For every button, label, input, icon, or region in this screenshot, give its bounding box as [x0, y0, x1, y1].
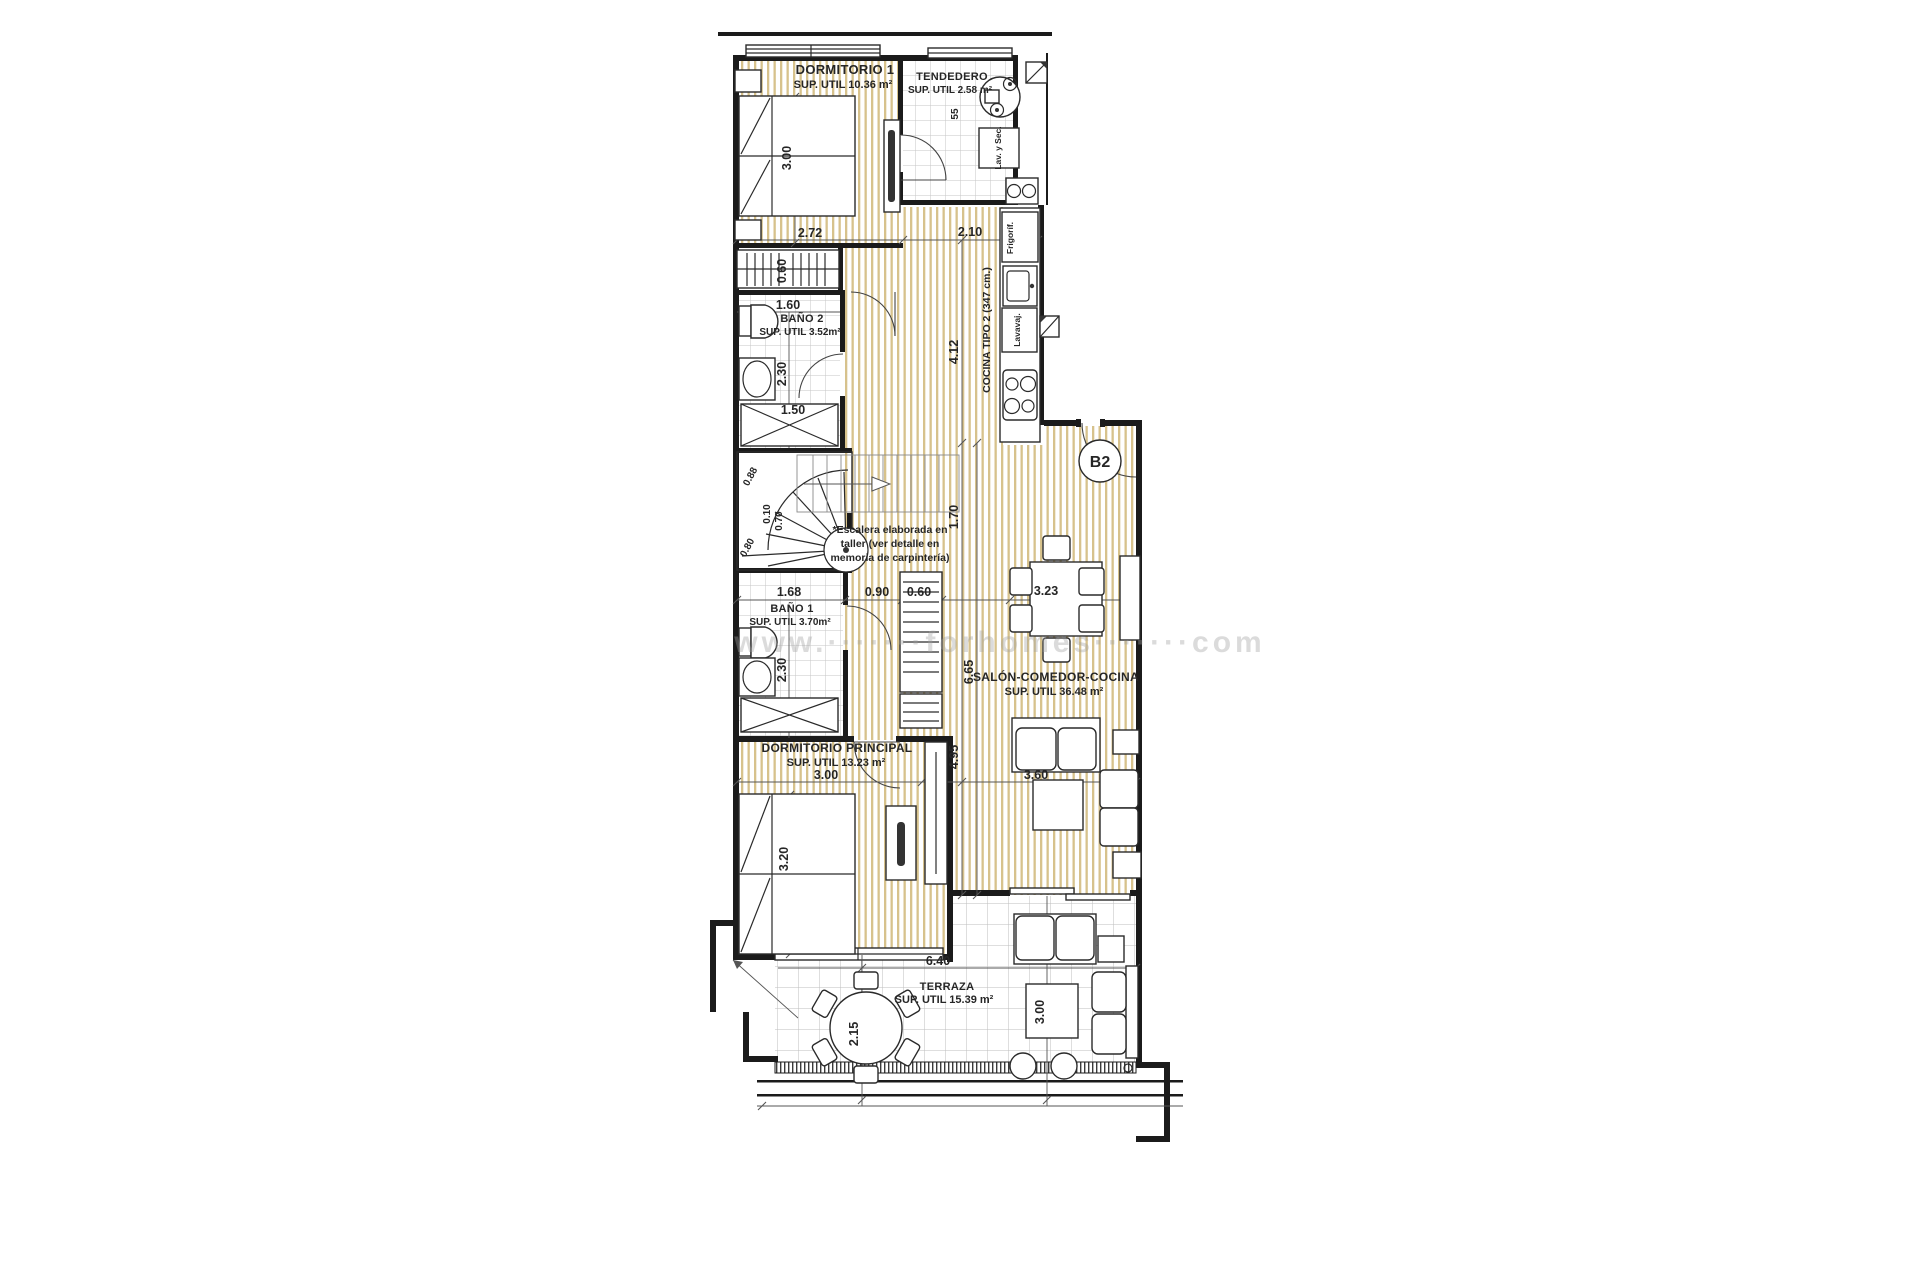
shaft-icon [1026, 62, 1047, 83]
dim-shower2-width: 1.50 [781, 403, 805, 417]
dim-closet-depth: 0.60 [907, 585, 931, 599]
bano1-name: BAÑO 1 [770, 602, 813, 615]
sofa-icon [1012, 718, 1100, 772]
sink-icon [1003, 266, 1037, 306]
nightstand-icon [735, 70, 761, 92]
dim-bano2-len: 2.30 [775, 362, 789, 386]
coffee-table-icon [1033, 780, 1083, 830]
stair-note-line1: *Escalera elaborada en [833, 524, 948, 536]
chair-icon [1043, 536, 1070, 560]
dim-dormp-width: 3.00 [814, 768, 838, 782]
dim-salon-len: 6.65 [962, 660, 976, 684]
hob-icon [1003, 370, 1037, 420]
chair-icon [1079, 568, 1104, 595]
dim-terraza-len: 2.15 [847, 1022, 861, 1046]
hall-top-floor [903, 207, 1003, 245]
tended​ero-name: TENDEDERO [916, 71, 988, 83]
dim-kitchen-len: 4.12 [947, 340, 961, 364]
window-tendedero [928, 48, 1012, 58]
window-dormitorio1 [746, 45, 880, 57]
dim-bano1-len: 2.30 [775, 658, 789, 682]
dim-sofa-zone: 3.60 [1024, 768, 1048, 782]
dim-terraza-sofa-zone: 3.00 [1033, 1000, 1047, 1024]
stair-note-line2: taller (ver detalle en [841, 538, 940, 550]
chair-icon [1010, 568, 1032, 595]
outdoor-sofa-icon [1092, 966, 1138, 1058]
dim-dorm1-width: 2.72 [798, 226, 822, 240]
washbasin-icon [739, 358, 775, 400]
dim-hall-len: 1.70 [947, 505, 961, 529]
dim-stair-c: 0.70 [774, 511, 785, 531]
dim-dormp-zone-len: 4.95 [947, 745, 961, 769]
dim-salon-width: 3.23 [1034, 584, 1058, 598]
armchair-icon [1100, 770, 1138, 808]
bano2-area: SUP. UTIL 3.52m² [759, 327, 841, 338]
dim-stair-b: 0.10 [762, 504, 773, 524]
dormitorio1-name: DORMITORIO 1 [796, 62, 895, 77]
dim-pass-width: 0.90 [865, 585, 889, 599]
tv-cabinet-icon [886, 806, 916, 880]
armchair-icon [1100, 808, 1138, 846]
wardrobe-icon [925, 742, 947, 884]
chair-icon [854, 1066, 878, 1083]
nightstand-icon [735, 220, 761, 240]
salon-name: SALÓN-COMEDOR-COCINA [973, 669, 1139, 684]
bed-icon [739, 96, 855, 216]
dishwasher-label: Lavavaj. [1012, 313, 1022, 347]
water-heater-icon [980, 77, 1020, 117]
bed-icon [739, 794, 855, 954]
dim-wardrobe-depth: 0.60 [775, 259, 789, 283]
dim-dorm1-bed: 3.00 [780, 146, 794, 170]
stair-note-line3: memoria de carpintería) [830, 552, 949, 564]
watermark: www.·······forhomes·······com [733, 626, 1265, 659]
shower-icon [741, 698, 838, 732]
dim-hall-top: 2.10 [958, 225, 982, 239]
shaft-icon [1040, 316, 1059, 337]
floor-plan-svg: DORMITORIO 1 SUP. UTIL 10.36 m² TENDEDER… [0, 0, 1920, 1280]
kitchen-sink-top-icon [1006, 178, 1038, 204]
pouf-icon [1051, 1053, 1077, 1079]
dim-bano2-width: 1.60 [776, 298, 800, 312]
dormp-name: DORMITORIO PRINCIPAL [762, 741, 913, 755]
dormitorio1-area: SUP. UTIL 10.36 m² [794, 79, 893, 91]
cabinet-icon [900, 694, 942, 728]
side-table-icon [1113, 852, 1141, 878]
unit-label: B2 [1090, 454, 1111, 471]
salon-area: SUP. UTIL 36.48 m² [1005, 686, 1104, 698]
mirror-cabinet-icon [884, 120, 900, 212]
fridge-label: Frigoríf. [1005, 222, 1015, 254]
dim-tendedero: 55 [950, 108, 961, 120]
dim-bano1-width: 1.68 [777, 585, 801, 599]
washbasin-icon [739, 658, 775, 696]
side-table-icon [1113, 730, 1139, 754]
terraza-area: SUP. UTIL 15.39 m² [895, 994, 994, 1006]
washer-dryer-label: Lav. y Sec. [993, 126, 1003, 169]
kitchen-type-label: COCINA TIPO 2 (347 cm.) [981, 267, 993, 393]
dim-terraza-width: 6.40 [926, 954, 950, 968]
dim-stair-a: 0.88 [741, 465, 760, 488]
dim-dormp-bed: 3.20 [777, 847, 791, 871]
round-table-icon [830, 992, 902, 1064]
pouf-icon [1010, 1053, 1036, 1079]
floor-plan-page: DORMITORIO 1 SUP. UTIL 10.36 m² TENDEDER… [0, 0, 1920, 1280]
chair-icon [854, 972, 878, 989]
tendedero-area: SUP. UTIL 2.58 m² [908, 85, 993, 96]
bano2-name: BAÑO 2 [780, 312, 823, 325]
terraza-name: TERRAZA [920, 981, 975, 993]
